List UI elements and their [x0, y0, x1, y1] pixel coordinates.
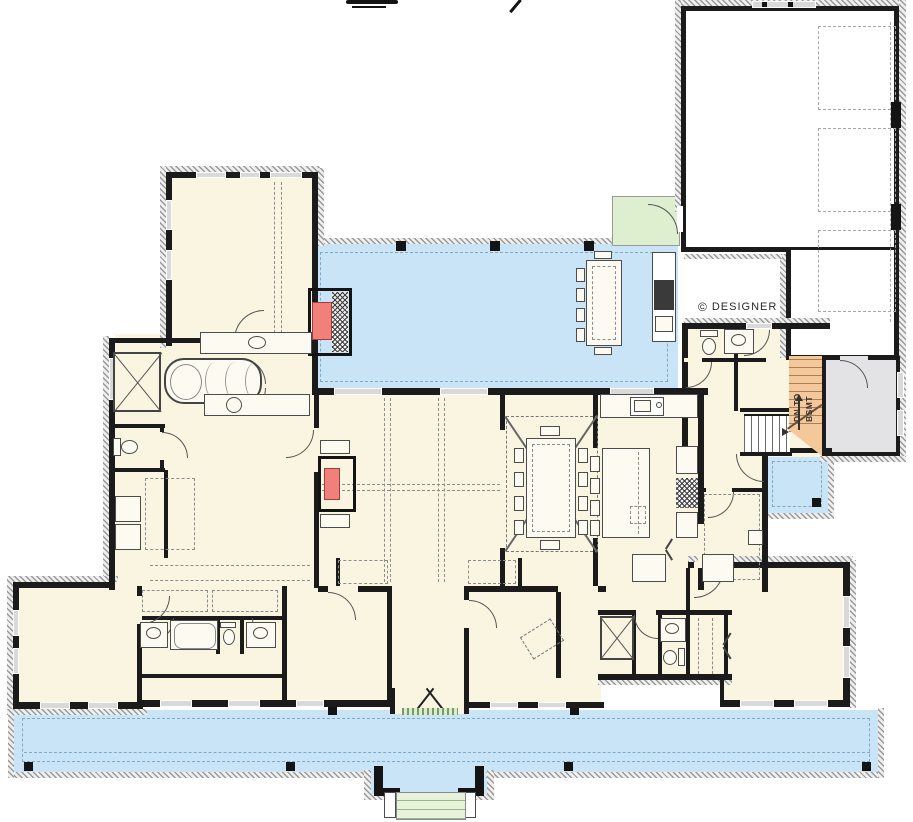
greatroom-fireplace-firebox: [324, 468, 340, 500]
exterior-edge: [318, 168, 324, 246]
front-porch-edge: [486, 772, 882, 778]
window: [296, 700, 324, 707]
wall: [13, 702, 143, 709]
kitchen-faucet: [656, 402, 662, 408]
garage-window-mullion: [788, 2, 793, 7]
toilet-bowl: [223, 629, 235, 645]
dresser: [115, 496, 141, 522]
kitchen-sink-bowl: [634, 400, 651, 412]
wall: [720, 674, 724, 704]
cropped-top-marks: [509, 0, 522, 13]
wall: [598, 674, 732, 680]
porch-column: [584, 241, 594, 251]
master-tub-inner: [170, 364, 202, 400]
outdoor-cabinet: [655, 316, 673, 332]
outdoor-chair: [576, 288, 585, 302]
wall: [464, 702, 604, 708]
outdoor-chair: [594, 251, 612, 259]
vanity-sink: [146, 627, 161, 639]
toilet-bowl: [121, 440, 138, 454]
outdoor-grill: [654, 280, 674, 310]
dining-chair: [540, 540, 560, 550]
closet: [142, 590, 208, 612]
porch-pilaster: [564, 762, 573, 771]
wall: [682, 323, 688, 460]
bedroom-left-wing: [15, 586, 139, 706]
window: [228, 700, 260, 707]
porch-pilaster: [328, 706, 337, 715]
outdoor-fireplace-masonry: [332, 292, 348, 352]
porch-pilaster: [286, 762, 295, 771]
front-porch-edge: [10, 772, 368, 778]
bedroom-right: [724, 610, 848, 706]
toilet-tank: [220, 622, 236, 628]
basement-stair-label-line2: BSMT: [804, 360, 814, 422]
dining-chair: [514, 520, 524, 535]
garage-car-bay: [818, 26, 896, 110]
refrigerator: [676, 446, 698, 474]
garage-door-pier: [891, 204, 901, 230]
ceiling-line: [274, 182, 275, 338]
kitchen-tall-cabinet: [676, 512, 698, 538]
stair-arrow: [782, 428, 789, 436]
porch-column: [812, 498, 821, 507]
storage-window: [897, 372, 904, 398]
window: [740, 700, 774, 707]
front-steps-rail: [384, 792, 396, 818]
toilet-bowl: [702, 338, 716, 355]
mudroom-bench: [632, 554, 666, 582]
front-porch-line: [24, 752, 870, 753]
window: [196, 172, 226, 178]
wall: [740, 408, 792, 412]
front-porch-edge: [878, 708, 884, 778]
window: [240, 172, 260, 178]
toilet-bowl: [663, 650, 677, 665]
exterior-edge: [598, 680, 732, 685]
window: [166, 200, 172, 230]
dining-chair: [514, 496, 524, 511]
window: [13, 610, 19, 636]
copyright-icon: ©: [698, 300, 708, 314]
designer-credit: © DESIGNER: [698, 300, 777, 314]
vanity-sink: [248, 336, 266, 349]
window: [843, 596, 850, 628]
outdoor-chair: [576, 328, 585, 342]
wall: [282, 586, 287, 704]
vanity-sink: [253, 627, 268, 639]
wall: [387, 588, 392, 702]
cased-opening: [392, 586, 464, 592]
cased-opening: [558, 586, 598, 592]
wall: [109, 468, 165, 472]
wall: [240, 620, 244, 654]
vanity-sink: [731, 334, 746, 346]
dining-table-inner: [532, 444, 570, 532]
master-closet: [145, 478, 195, 550]
dining-chair: [540, 426, 560, 436]
window: [843, 646, 850, 678]
bathtub-inner: [174, 623, 216, 649]
kitchen-island: [602, 448, 650, 538]
window: [794, 700, 828, 707]
bar-stool: [590, 478, 600, 494]
window: [40, 702, 70, 709]
wall: [724, 614, 728, 678]
exterior-edge: [7, 709, 147, 715]
bar-stool: [590, 520, 600, 536]
door-opening: [328, 586, 358, 592]
porch-column: [490, 241, 500, 251]
fireplace-builtin: [320, 440, 350, 454]
window: [490, 702, 518, 708]
toilet-tank: [678, 648, 685, 666]
garage-bay-line: [890, 22, 891, 322]
toilet-tank: [700, 330, 718, 337]
dining-chair: [578, 448, 588, 463]
kitchen-island-sink: [630, 506, 646, 524]
hall-ceiling-line: [150, 580, 310, 581]
wall: [13, 582, 19, 709]
storage-exterior-edge: [820, 456, 906, 462]
basement-stair-label-line1: DN TO: [792, 360, 802, 422]
closet: [338, 560, 388, 584]
porch-pilaster: [24, 762, 33, 771]
utility-sink: [748, 530, 763, 545]
wall: [312, 172, 318, 250]
ceiling-line: [281, 182, 282, 338]
garage-door-pier: [891, 102, 901, 128]
closet: [468, 560, 516, 584]
designer-credit-text: DESIGNER: [712, 301, 777, 313]
garage-car-bay: [818, 230, 896, 312]
window: [270, 172, 302, 178]
entry-threshold: [402, 708, 458, 715]
wall: [686, 614, 690, 678]
window: [166, 250, 172, 280]
sliding-door: [440, 388, 488, 395]
sliding-door: [334, 388, 382, 395]
front-porch-edge: [8, 708, 14, 778]
pantry-cabinet: [676, 478, 698, 508]
mudroom-bench: [702, 554, 734, 582]
dresser: [115, 524, 141, 550]
wall: [13, 582, 115, 588]
dining-chair: [578, 472, 588, 487]
toilet-tank: [113, 438, 121, 456]
closet: [212, 590, 278, 612]
outdoor-chair: [576, 268, 585, 282]
window: [160, 700, 192, 707]
hall-ceiling-line: [150, 565, 310, 566]
outdoor-fireplace-firebox: [312, 302, 332, 340]
porch-pilaster: [862, 762, 871, 771]
wall: [500, 392, 505, 430]
cropped-top-marks: [352, 6, 386, 8]
vanity-sink: [226, 397, 242, 413]
cropped-top-marks: [346, 0, 398, 4]
wall: [843, 562, 850, 707]
vanity-counter: [204, 394, 310, 416]
window: [538, 702, 566, 708]
garage-window-mullion: [762, 2, 767, 7]
closet-rod: [712, 618, 713, 674]
door-opening: [677, 206, 683, 232]
vanity-sink: [665, 623, 679, 634]
window: [88, 702, 118, 709]
front-steps: [396, 792, 466, 820]
exterior-edge: [850, 560, 856, 708]
garage-exterior-edge: [780, 254, 786, 358]
dining-chair: [514, 472, 524, 487]
storage-window: [897, 410, 904, 436]
wall: [109, 424, 165, 428]
side-porch-edge: [766, 513, 834, 519]
bar-stool: [590, 500, 600, 516]
outdoor-chair: [576, 308, 585, 322]
closet-rod: [698, 618, 699, 674]
garage-exterior-edge: [675, 0, 681, 212]
window: [13, 648, 19, 674]
wall: [109, 338, 176, 343]
dining-chair: [514, 448, 524, 463]
wall: [686, 568, 690, 614]
garage-exterior-edge: [684, 254, 782, 259]
garage-car-bay: [818, 128, 896, 212]
front-porch-ceiling-line: [22, 718, 870, 762]
dining-chair: [578, 496, 588, 511]
stair-direction-line: [798, 400, 800, 430]
outdoor-chair: [594, 347, 612, 355]
bar-stool: [590, 456, 600, 472]
wall: [137, 674, 285, 678]
porch-column: [396, 241, 406, 251]
floor-plan: DN TO BSMT: [0, 0, 913, 822]
fireplace-builtin: [320, 514, 350, 528]
dining-chair: [578, 520, 588, 535]
outdoor-dining-table-inner: [592, 266, 616, 340]
stair-direction-arrowhead: [795, 394, 803, 401]
wall: [518, 558, 522, 586]
wall: [598, 610, 732, 615]
